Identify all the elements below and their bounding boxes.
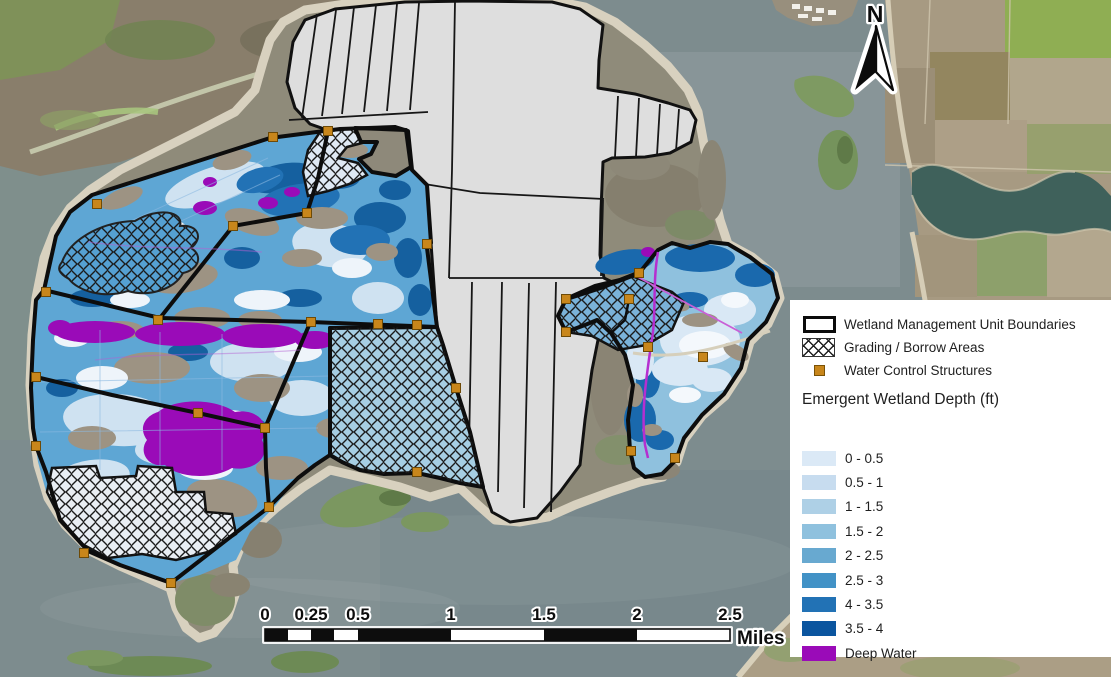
scale-bar-unit-label: Miles (737, 628, 785, 649)
scale-tick-label: 0 (260, 605, 269, 624)
legend-item-structures: Water Control Structures (802, 359, 1103, 382)
water-control-structure-marker (32, 373, 41, 382)
depth-class-label: 1 - 1.5 (845, 499, 883, 514)
depth-class-swatch-4 (802, 548, 836, 563)
depth-class-list: 0 - 0.50.5 - 11 - 1.51.5 - 22 - 2.52.5 -… (802, 446, 1103, 666)
water-control-structure-marker (627, 447, 636, 456)
depth-class-swatch-3 (802, 524, 836, 539)
hatch-swatch-col (802, 338, 844, 357)
depth-class-label: 3.5 - 4 (845, 621, 883, 636)
water-control-structure-marker (374, 320, 383, 329)
scale-bar-segment (334, 629, 358, 641)
grading-borrow-swatch-icon (802, 338, 835, 357)
depth-class-label: Deep Water (845, 646, 917, 661)
water-control-structure-marker (644, 343, 653, 352)
legend-item-label: Water Control Structures (844, 363, 992, 378)
depth-class-label: 0 - 0.5 (845, 451, 883, 466)
water-control-structure-marker (671, 454, 680, 463)
legend-item-boundaries: Wetland Management Unit Boundaries (802, 313, 1103, 336)
north-arrow-label: N (867, 1, 884, 27)
depth-class-row: 0 - 0.5 (802, 446, 1103, 470)
scale-tick-label: 1.5 (532, 605, 556, 624)
water-control-structure-marker (229, 222, 238, 231)
wetland-management-map: N 00.250.511.522.5 Miles Wetland Managem… (0, 0, 1111, 677)
water-control-structure-marker (562, 328, 571, 337)
water-control-structure-marker (93, 200, 102, 209)
water-control-structure-marker (261, 424, 270, 433)
scale-bar-segment (544, 629, 637, 641)
water-control-structure-marker (413, 468, 422, 477)
unit-boundary-swatch-icon (803, 316, 836, 333)
depth-class-label: 0.5 - 1 (845, 475, 883, 490)
depth-class-row: 4 - 3.5 (802, 592, 1103, 616)
scale-tick-label: 2.5 (718, 605, 742, 624)
water-control-structure-marker (452, 384, 461, 393)
scale-bar-segment (637, 629, 730, 641)
legend-item-borrow-areas: Grading / Borrow Areas (802, 336, 1103, 359)
scale-tick-label: 0.25 (294, 605, 327, 624)
water-control-structure-marker (265, 503, 274, 512)
depth-class-row: Deep Water (802, 641, 1103, 665)
legend-item-label: Wetland Management Unit Boundaries (844, 317, 1076, 332)
depth-class-row: 2 - 2.5 (802, 544, 1103, 568)
depth-class-row: 0.5 - 1 (802, 470, 1103, 494)
water-control-structure-marker (562, 295, 571, 304)
structure-swatch-col (802, 365, 844, 376)
water-control-structure-marker (80, 549, 89, 558)
scale-tick-label: 1 (446, 605, 455, 624)
scale-tick-label: 2 (632, 605, 641, 624)
depth-class-row: 1.5 - 2 (802, 519, 1103, 543)
water-control-structure-marker (32, 442, 41, 451)
depth-class-swatch-2 (802, 499, 836, 514)
water-control-structure-marker (324, 127, 333, 136)
depth-class-swatch-8 (802, 646, 836, 661)
legend: Wetland Management Unit Boundaries Gradi… (790, 300, 1111, 657)
scale-bar-segment (451, 629, 544, 641)
water-control-structure-marker (423, 240, 432, 249)
scale-bar-segment (311, 629, 334, 641)
water-control-structure-marker (307, 318, 316, 327)
water-control-structure-marker (269, 133, 278, 142)
water-control-structure-marker (625, 295, 634, 304)
depth-section-title: Emergent Wetland Depth (ft) (802, 391, 1103, 409)
depth-class-row: 2.5 - 3 (802, 568, 1103, 592)
scale-bar-segment (358, 629, 451, 641)
water-control-structure-marker (154, 316, 163, 325)
depth-class-label: 1.5 - 2 (845, 524, 883, 539)
depth-class-row: 1 - 1.5 (802, 495, 1103, 519)
boundary-swatch-col (802, 316, 844, 333)
legend-item-label: Grading / Borrow Areas (844, 340, 984, 355)
water-control-structure-marker (635, 269, 644, 278)
depth-class-row: 3.5 - 4 (802, 617, 1103, 641)
depth-class-label: 2.5 - 3 (845, 573, 883, 588)
water-control-structure-marker (699, 353, 708, 362)
scale-tick-label: 0.5 (346, 605, 370, 624)
depth-class-swatch-1 (802, 475, 836, 490)
depth-class-swatch-0 (802, 451, 836, 466)
depth-class-label: 2 - 2.5 (845, 548, 883, 563)
water-control-structure-marker (194, 409, 203, 418)
scale-bar-segment (288, 629, 311, 641)
water-control-structure-marker (303, 209, 312, 218)
water-control-structure-marker (42, 288, 51, 297)
depth-class-swatch-6 (802, 597, 836, 612)
depth-class-swatch-7 (802, 621, 836, 636)
scale-bar-segments (265, 629, 730, 641)
scale-bar-segment (265, 629, 288, 641)
depth-class-swatch-5 (802, 573, 836, 588)
water-control-structure-marker (167, 579, 176, 588)
water-control-structure-marker (413, 321, 422, 330)
depth-class-label: 4 - 3.5 (845, 597, 883, 612)
water-control-structure-swatch-icon (814, 365, 825, 376)
